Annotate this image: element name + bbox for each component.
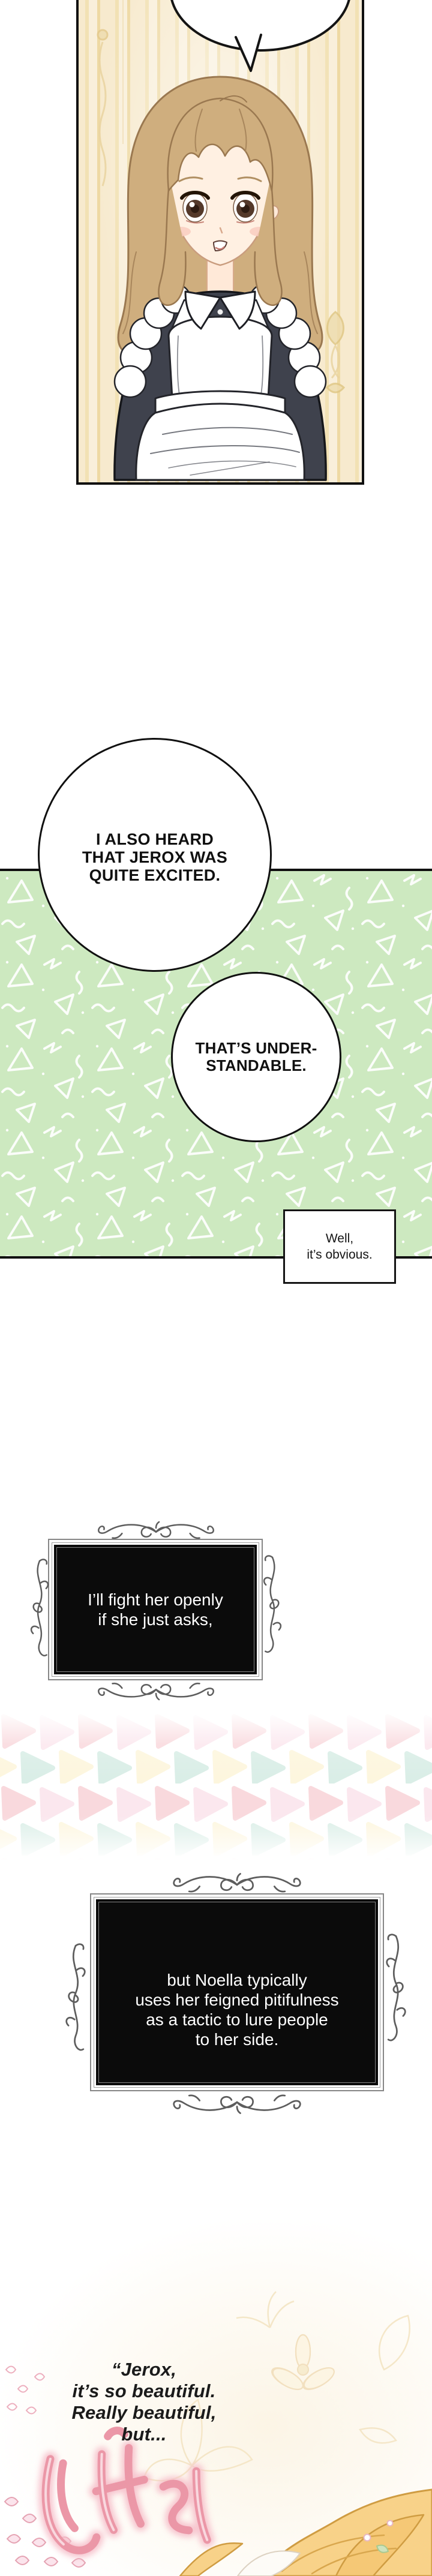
webtoon-page: I ALSO HEARD THAT JEROX WAS QUITE EXCITE… (0, 0, 432, 2576)
narration-line: as a tactic to lure people (96, 2010, 378, 2029)
caption-line: it’s obvious. (285, 1247, 394, 1263)
bubble1-line: I ALSO HEARD (96, 830, 214, 848)
panel-maid-closeup (76, 0, 364, 485)
flourish-ornament-right (260, 1551, 284, 1665)
flourish-ornament-left (62, 1933, 89, 2071)
monologue-line: Really beautiful, (36, 2402, 252, 2424)
flourish-ornament-right (383, 1923, 409, 2061)
narration-box-1-text: I’ll fight her openly if she just asks, (54, 1545, 257, 1674)
narration-box-2: but Noella typically uses her feigned pi… (90, 1893, 384, 2091)
narration-line: if she just asks, (54, 1610, 257, 1629)
flourish-ornament-top (84, 1519, 228, 1543)
narration-box-1-frame: I’ll fight her openly if she just asks, (52, 1542, 259, 1677)
narration-box-2-text: but Noella typically uses her feigned pi… (96, 1899, 378, 2085)
speech-bubble-top (79, 0, 362, 132)
monologue-line: it’s so beautiful. (36, 2380, 252, 2402)
narration-line: to her side. (96, 2029, 378, 2049)
narration-box-1: I’ll fight her openly if she just asks, (48, 1539, 263, 1680)
flourish-ornament-bottom (84, 1679, 228, 1703)
narration-box-2-frame: but Noella typically uses her feigned pi… (94, 1897, 380, 2088)
pastel-band-fade (0, 1712, 432, 1860)
blonde-character-hair (180, 2490, 432, 2576)
monologue-line: but... (36, 2424, 252, 2445)
speech-bubble-2: THAT’S UNDER- STANDABLE. (171, 972, 341, 1142)
flourish-ornament-bottom (159, 2090, 315, 2116)
speech-bubble-1: I ALSO HEARD THAT JEROX WAS QUITE EXCITE… (38, 738, 272, 972)
narration-line: but Noella typically (96, 1970, 378, 1990)
bubble2-line: STANDABLE. (206, 1057, 307, 1074)
bubble2-line: THAT’S UNDER- (196, 1040, 317, 1057)
flourish-ornament-left (28, 1555, 52, 1669)
bottom-scene-art (0, 2118, 432, 2576)
narration-line: uses her feigned pitifulness (96, 1990, 378, 2010)
caption-line: Well, (285, 1230, 394, 1247)
monologue-line: “Jerox, (36, 2359, 252, 2380)
flourish-ornament-top (159, 1871, 315, 1897)
caption-box: Well, it’s obvious. (283, 1209, 396, 1284)
narration-line: I’ll fight her openly (54, 1590, 257, 1610)
monologue-text: “Jerox, it’s so beautiful. Really beauti… (36, 2359, 252, 2445)
bubble1-line: THAT JEROX WAS (82, 848, 227, 866)
bubble1-line: QUITE EXCITED. (89, 866, 221, 884)
